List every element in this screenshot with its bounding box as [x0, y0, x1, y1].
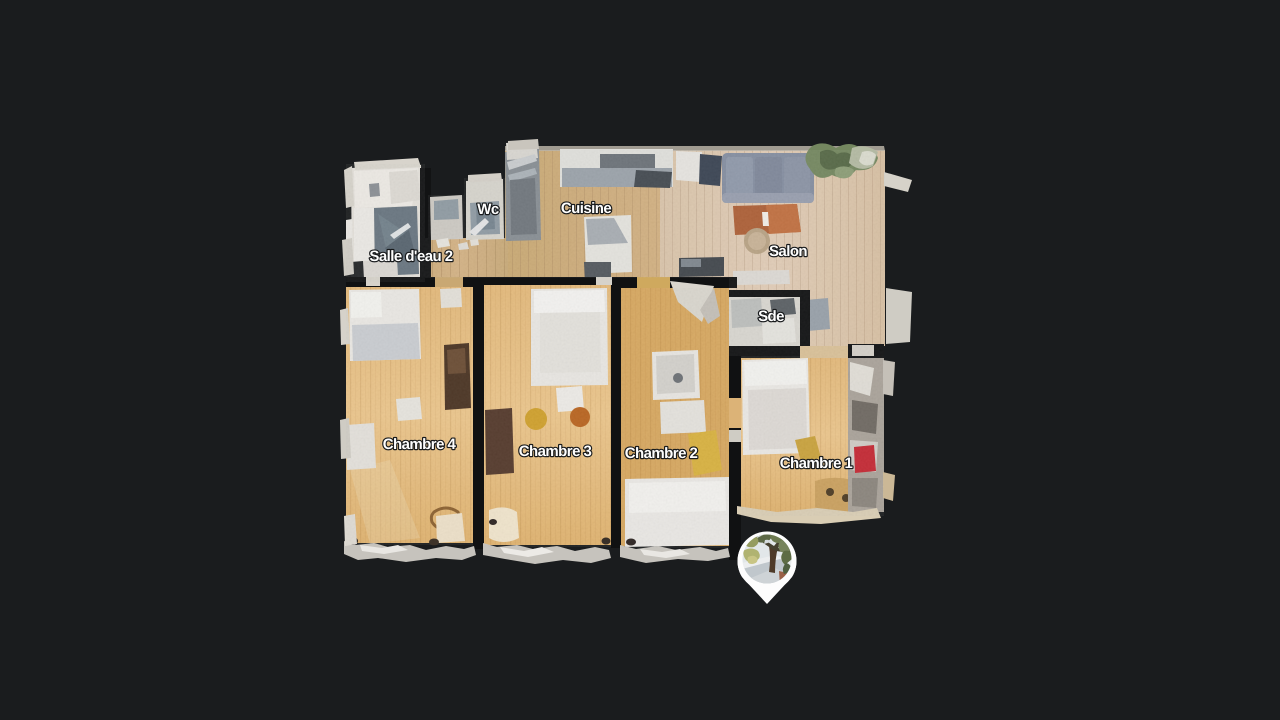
svg-text:Salon: Salon: [769, 243, 807, 260]
svg-text:Sde: Sde: [758, 308, 784, 325]
svg-text:Chambre 4: Chambre 4: [383, 436, 457, 453]
svg-text:Chambre 1: Chambre 1: [780, 455, 853, 472]
svg-text:Wc: Wc: [477, 201, 499, 218]
svg-text:Cuisine: Cuisine: [561, 200, 612, 217]
svg-text:Chambre 3: Chambre 3: [519, 443, 592, 460]
svg-text:Chambre 2: Chambre 2: [625, 445, 698, 462]
svg-text:Salle d'eau 2: Salle d'eau 2: [369, 248, 452, 265]
